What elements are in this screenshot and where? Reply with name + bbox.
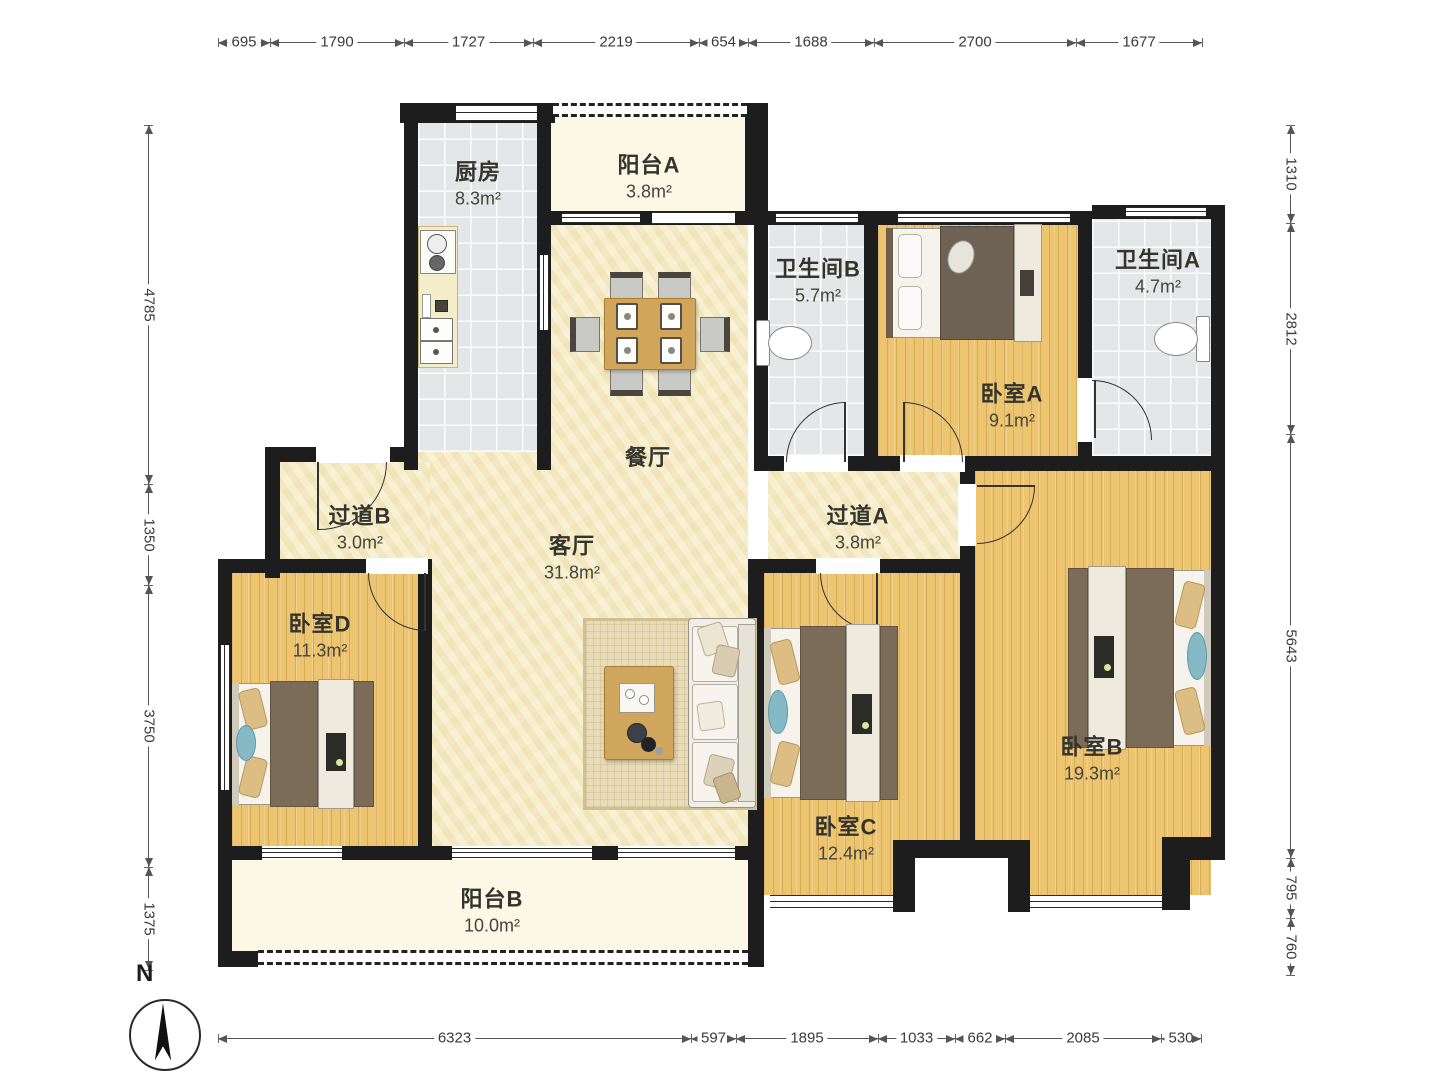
living-balcony-window	[452, 848, 592, 858]
tick	[1286, 858, 1295, 859]
dim-value: 1727	[448, 34, 489, 51]
tv-unit	[1094, 636, 1114, 678]
floor-plan: 厨房 8.3m² 阳台A 3.8m² 卫生间B 5.7m² 卧室A 9.1m² …	[0, 0, 1440, 1080]
living-balcony-window-2	[618, 848, 735, 858]
bedroom-c-door-opening	[816, 558, 880, 574]
tray-cup	[639, 695, 649, 705]
north-label: N	[136, 960, 153, 988]
place-setting	[660, 337, 682, 364]
room-area: 5.7m²	[775, 286, 861, 307]
wall	[1211, 205, 1225, 850]
dim-top-654: 654	[699, 42, 748, 43]
table-vase	[641, 737, 656, 752]
room-area: 19.3m²	[1061, 764, 1124, 785]
tick	[1202, 38, 1203, 47]
room-area: 3.0m²	[329, 533, 392, 554]
room-label-hall-a: 过道A 3.8m²	[827, 499, 890, 554]
tick	[144, 484, 153, 485]
tick	[878, 1034, 879, 1043]
blue-cushion	[236, 725, 256, 761]
room-area: 3.8m²	[827, 533, 890, 554]
tray-cup	[625, 689, 635, 699]
room-name: 阳台B	[461, 882, 524, 914]
dim-bottom-1033: 1033	[878, 1038, 955, 1039]
wall	[342, 846, 452, 860]
duvet-end	[1068, 568, 1088, 748]
room-label-living: 客厅 31.8m²	[544, 529, 600, 584]
dim-value: 760	[1283, 930, 1300, 963]
stove-burner	[429, 255, 445, 271]
dim-right-5643: 5643	[1290, 434, 1291, 858]
dim-value: 2700	[954, 34, 995, 51]
duvet-end	[354, 681, 374, 807]
tray	[619, 683, 655, 713]
dining-chair	[700, 317, 730, 352]
room-area: 3.8m²	[618, 182, 681, 203]
room-label-bedroom-c: 卧室C 12.4m²	[815, 810, 878, 865]
bedroom-b-door-leaf	[977, 485, 1035, 487]
dim-top-1790: 1790	[270, 42, 404, 43]
dim-value: 6323	[434, 1030, 475, 1047]
tick	[218, 38, 219, 47]
dim-value: 4785	[141, 284, 158, 325]
coffee-table	[604, 666, 674, 760]
tick	[144, 585, 153, 586]
bath-b-window	[776, 213, 858, 223]
tick	[1286, 223, 1295, 224]
dim-top-2219: 2219	[533, 42, 699, 43]
table-dot	[655, 747, 663, 755]
kitchen-pass-window	[539, 255, 549, 330]
dim-bottom-662: 662	[955, 1038, 1005, 1039]
tick	[1286, 125, 1295, 126]
room-name: 过道A	[827, 499, 890, 531]
kitchen-window	[456, 105, 537, 121]
room-label-bath-b: 卫生间B 5.7m²	[775, 252, 861, 307]
dim-value: 3750	[141, 705, 158, 746]
dim-value: 695	[227, 34, 260, 51]
room-label-bath-a: 卫生间A 4.7m²	[1115, 243, 1201, 298]
dim-value: 5643	[1283, 625, 1300, 666]
dim-value: 1790	[316, 34, 357, 51]
dim-value: 2219	[595, 34, 636, 51]
room-area: 8.3m²	[455, 189, 501, 210]
room-label-hall-b: 过道B 3.0m²	[329, 499, 392, 554]
room-label-bedroom-a: 卧室A 9.1m²	[981, 377, 1044, 432]
dim-left-1375: 1375	[148, 867, 149, 970]
bedroom-a-door-leaf	[903, 402, 905, 462]
tick	[691, 1034, 692, 1043]
ac-pillar-notch	[915, 858, 1008, 912]
dim-left-4785: 4785	[148, 125, 149, 484]
pillow	[898, 286, 922, 330]
blue-cushion	[768, 690, 788, 734]
bedroom-d-door-leaf	[424, 573, 426, 631]
cabinet-box	[1020, 270, 1034, 296]
tv-dot	[336, 759, 343, 766]
dim-top-1677: 1677	[1076, 42, 1202, 43]
bed-a	[886, 226, 1042, 340]
room-label-balcony-a: 阳台A 3.8m²	[618, 148, 681, 203]
tick	[1286, 918, 1295, 919]
bath-a-door-leaf	[1094, 380, 1096, 438]
room-area: 9.1m²	[981, 411, 1044, 432]
tick	[736, 1034, 737, 1043]
blue-cushion	[1187, 632, 1207, 680]
wall	[232, 846, 262, 860]
dim-value: 530	[1164, 1030, 1197, 1047]
bath-b-door-leaf	[844, 402, 846, 462]
room-name: 卫生间A	[1115, 243, 1201, 275]
dim-top-2700: 2700	[874, 42, 1076, 43]
duvet-end	[880, 626, 898, 800]
tick	[404, 38, 405, 47]
bed-b	[1068, 568, 1211, 748]
room-name: 客厅	[544, 529, 600, 561]
entry-door-leaf	[317, 462, 319, 530]
room-name: 过道B	[329, 499, 392, 531]
toilet-tank	[1196, 316, 1210, 362]
dining-balcony-window	[562, 213, 640, 223]
bedroom-d-window	[220, 645, 230, 790]
sofa-backrest	[738, 624, 756, 802]
dim-value: 2812	[1283, 308, 1300, 349]
sofa	[686, 616, 758, 810]
wall	[218, 846, 232, 967]
room-area: 10.0m²	[461, 916, 524, 937]
room-name: 卧室D	[289, 607, 352, 639]
tick	[270, 38, 271, 47]
dim-bottom-530: 530	[1161, 1038, 1201, 1039]
room-area: 4.7m²	[1115, 277, 1201, 298]
wall	[864, 225, 878, 471]
sink-drain	[433, 349, 439, 355]
tick	[1201, 1034, 1202, 1043]
room-area: 31.8m²	[544, 563, 600, 584]
duvet	[800, 626, 846, 800]
dining-chair	[610, 366, 643, 396]
duvet	[940, 226, 1014, 340]
tick	[955, 1034, 956, 1043]
room-label-balcony-b: 阳台B 10.0m²	[461, 882, 524, 937]
place-setting	[660, 303, 682, 330]
tick	[1286, 975, 1295, 976]
duvet	[1126, 568, 1174, 748]
pillow	[898, 234, 922, 278]
toilet-bowl	[1154, 322, 1198, 356]
dim-top-695: 695	[218, 42, 270, 43]
place-setting	[616, 337, 638, 364]
wall	[592, 846, 618, 860]
bedroom-c-window	[770, 895, 893, 908]
bedroom-a-window	[898, 213, 1070, 223]
dim-value: 795	[1283, 871, 1300, 904]
tick	[748, 38, 749, 47]
dim-value: 654	[707, 34, 740, 51]
tick	[1161, 1034, 1162, 1043]
toilet-bowl	[768, 326, 812, 360]
room-area: 12.4m²	[815, 844, 878, 865]
place-setting	[616, 303, 638, 330]
bath-a-door-opening	[1077, 378, 1093, 442]
dim-right-760: 760	[1290, 918, 1291, 975]
dim-value: 662	[963, 1030, 996, 1047]
room-name: 卫生间B	[775, 252, 861, 284]
tv-unit	[852, 694, 872, 734]
dim-value: 1350	[141, 514, 158, 555]
room-label-bedroom-d: 卧室D 11.3m²	[289, 607, 352, 662]
dim-value: 1688	[790, 34, 831, 51]
tick	[1076, 38, 1077, 47]
room-name: 卧室B	[1061, 730, 1124, 762]
room-name: 阳台A	[618, 148, 681, 180]
bed-c	[764, 628, 898, 800]
dim-value: 1677	[1118, 34, 1159, 51]
entry-door-opening	[316, 446, 390, 463]
bedroom-b-door-opening	[958, 484, 976, 546]
bedroom-c-door-leaf	[876, 573, 878, 631]
dim-bottom-1895: 1895	[736, 1038, 878, 1039]
sink-divider	[420, 340, 453, 342]
room-name: 厨房	[455, 155, 501, 187]
tick	[874, 38, 875, 47]
bedroom-d-door-opening	[366, 558, 428, 574]
tv-dot	[862, 722, 869, 729]
balcony-a-railing	[553, 103, 747, 117]
headboard	[886, 228, 893, 338]
dim-bottom-2085: 2085	[1005, 1038, 1161, 1039]
tv-dot	[1104, 664, 1111, 671]
dim-value: 2085	[1062, 1030, 1103, 1047]
bedroom-b-window	[1030, 895, 1162, 908]
dim-value: 1310	[1283, 153, 1300, 194]
wall	[1162, 837, 1190, 910]
tick	[1286, 434, 1295, 435]
dim-left-1350: 1350	[148, 484, 149, 585]
room-name: 餐厅	[625, 440, 671, 472]
bath-a-window	[1126, 207, 1206, 217]
tick	[144, 125, 153, 126]
room-label-bedroom-b: 卧室B 19.3m²	[1061, 730, 1124, 785]
tick	[1005, 1034, 1006, 1043]
dim-value: 597	[697, 1030, 730, 1047]
dim-left-3750: 3750	[148, 585, 149, 867]
balcony-a-door-opening	[652, 212, 735, 224]
dim-right-1310: 1310	[1290, 125, 1291, 223]
room-label-dining: 餐厅	[625, 440, 671, 472]
dining-chair	[658, 366, 691, 396]
bed-d	[232, 681, 374, 807]
dim-value: 1895	[786, 1030, 827, 1047]
wall	[218, 951, 258, 967]
room-area: 11.3m²	[289, 641, 352, 662]
balcony-b-railing	[258, 950, 748, 965]
tick	[218, 1034, 219, 1043]
dim-bottom-6323: 6323	[218, 1038, 691, 1039]
room-name: 卧室A	[981, 377, 1044, 409]
dining-chair	[570, 317, 600, 352]
room-name: 卧室C	[815, 810, 878, 842]
wall	[745, 103, 768, 225]
tick	[144, 867, 153, 868]
counter-item	[435, 300, 448, 312]
duvet	[270, 681, 318, 807]
balcony-b-window-1	[262, 848, 342, 858]
dim-top-1688: 1688	[748, 42, 874, 43]
dim-right-795: 795	[1290, 858, 1291, 918]
dim-bottom-597: 597	[691, 1038, 736, 1039]
dim-value: 1033	[896, 1030, 937, 1047]
tick	[533, 38, 534, 47]
dim-right-2812: 2812	[1290, 223, 1291, 434]
room-label-kitchen: 厨房 8.3m²	[455, 155, 501, 210]
stove-dial	[427, 234, 447, 254]
sink-drain	[433, 327, 439, 333]
wall	[404, 103, 418, 470]
tv-unit	[326, 733, 346, 771]
dim-top-1727: 1727	[404, 42, 533, 43]
tick	[699, 38, 700, 47]
counter-item	[422, 294, 431, 318]
dim-value: 1375	[141, 898, 158, 939]
throw-pillow	[696, 700, 726, 731]
